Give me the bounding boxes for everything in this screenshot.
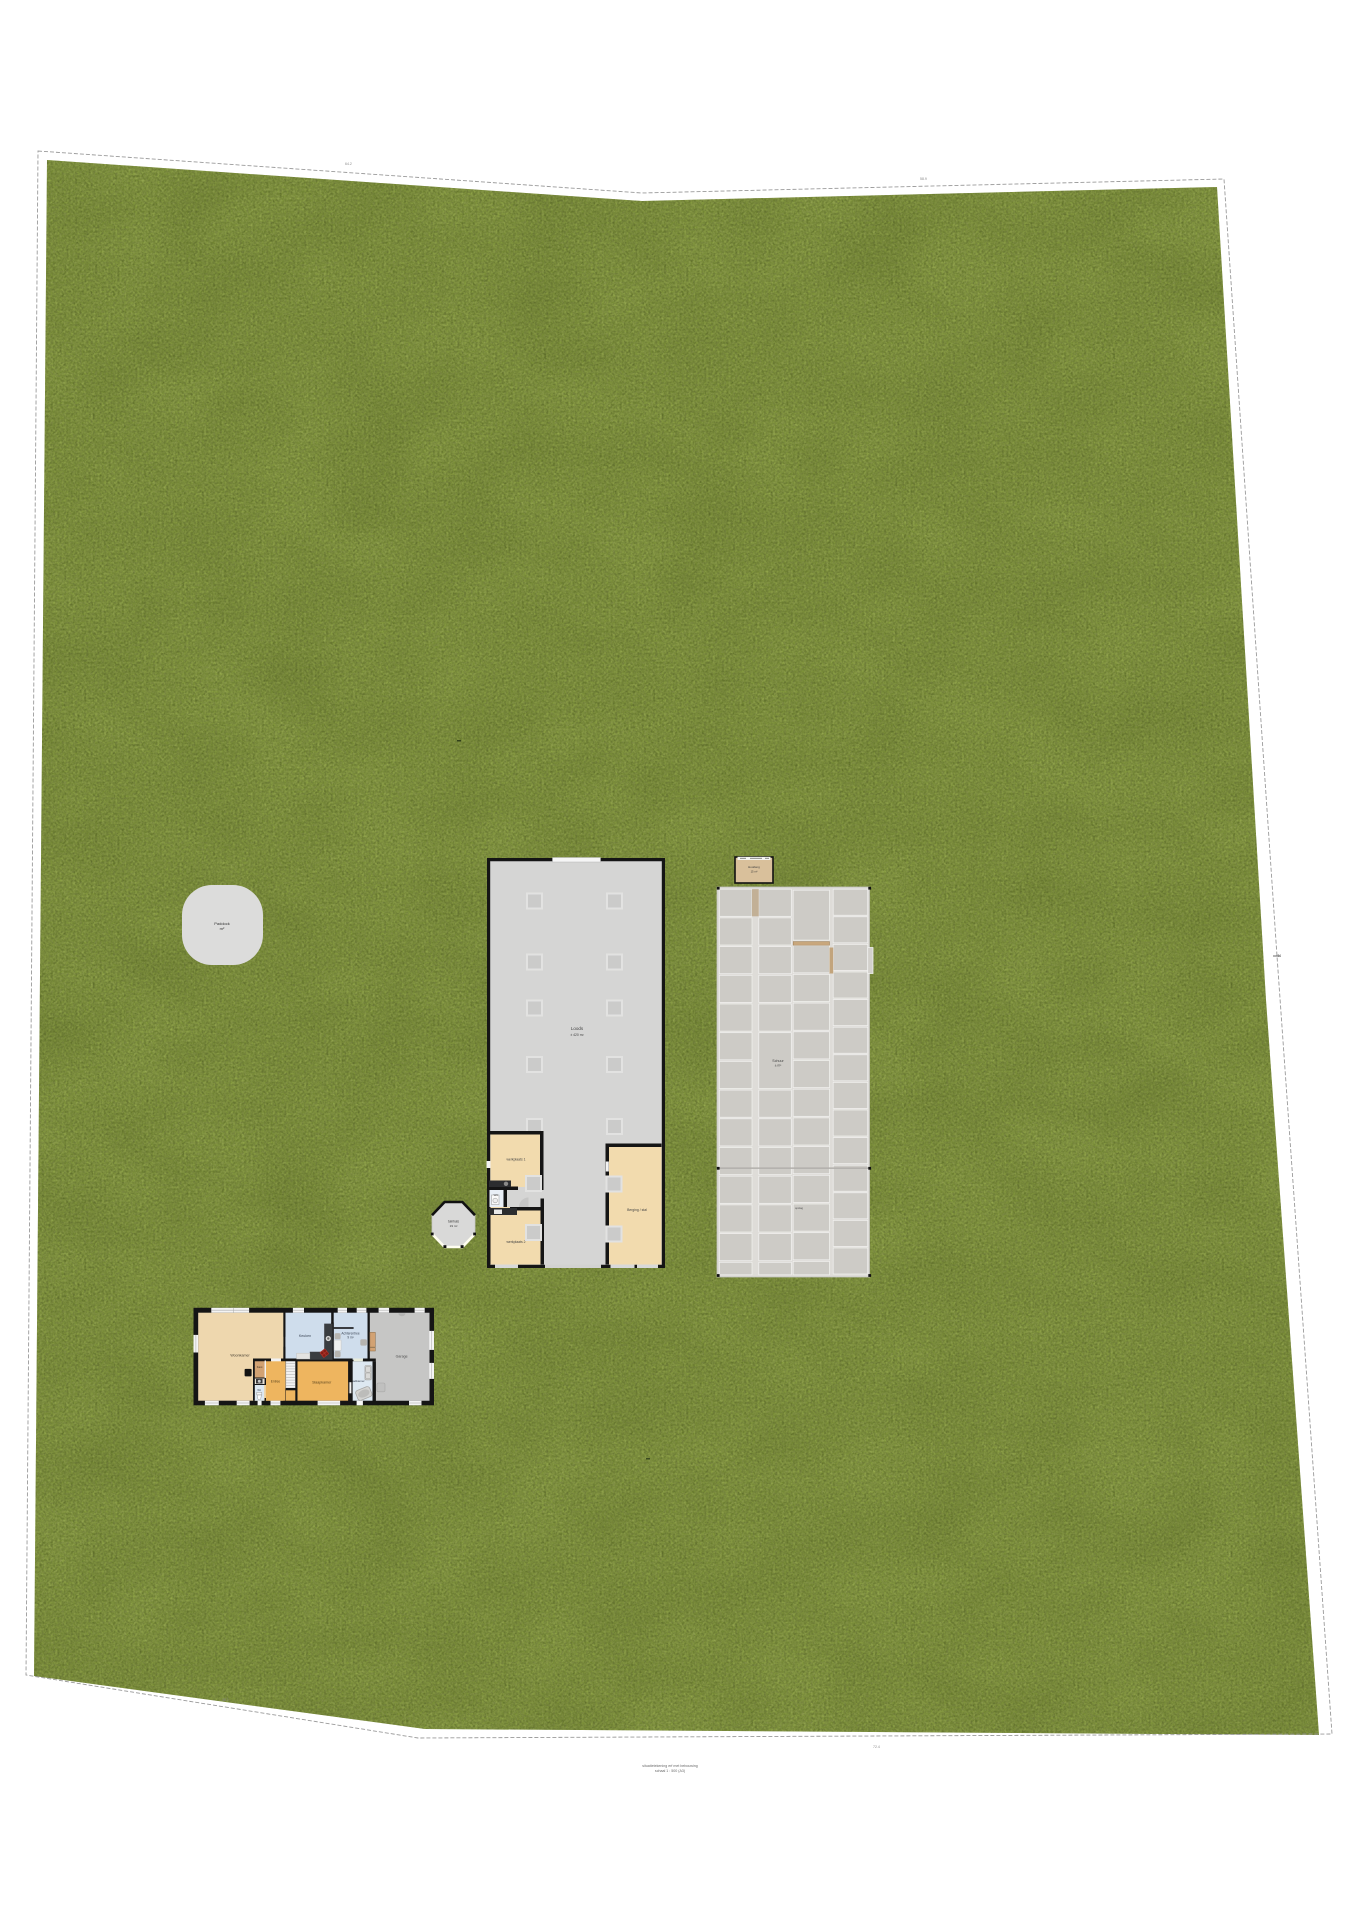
svg-text:Woonkamer: Woonkamer [230, 1354, 250, 1358]
svg-text:± m²: ± m² [775, 1064, 782, 1068]
svg-text:Hooiberg: Hooiberg [748, 865, 760, 869]
svg-text:15 m²: 15 m² [751, 869, 758, 873]
svg-text:74: 74 [1278, 954, 1282, 958]
svg-text:schaal 1 : 500 (A3): schaal 1 : 500 (A3) [655, 1769, 685, 1773]
svg-text:Schuur: Schuur [772, 1059, 784, 1063]
svg-text:Berging / stal: Berging / stal [627, 1208, 647, 1212]
svg-text:38.1: 38.1 [222, 1698, 229, 1702]
svg-text:Kast: Kast [257, 1365, 263, 1369]
svg-text:Garage: Garage [396, 1355, 408, 1359]
svg-text:± 420 m²: ± 420 m² [570, 1033, 584, 1037]
svg-text:Keuken: Keuken [299, 1334, 311, 1338]
svg-text:werkplaats 1: werkplaats 1 [506, 1158, 525, 1162]
svg-text:Entree: Entree [271, 1380, 281, 1384]
svg-text:58.9: 58.9 [920, 177, 927, 181]
svg-text:m²: m² [220, 926, 225, 931]
svg-text:64.2: 64.2 [345, 162, 352, 166]
svg-text:Badkamer: Badkamer [351, 1379, 365, 1383]
svg-text:WC: WC [494, 1193, 499, 1197]
svg-text:Slaapkamer: Slaapkamer [312, 1381, 332, 1385]
svg-text:situatietekening erf met bebou: situatietekening erf met bebouwing [642, 1764, 698, 1768]
svg-text:opslag: opslag [795, 1206, 804, 1210]
svg-text:werkplaats 2: werkplaats 2 [506, 1240, 525, 1244]
svg-text:9 m²: 9 m² [347, 1336, 353, 1340]
svg-text:tuinhuis: tuinhuis [448, 1220, 459, 1224]
svg-text:Loods: Loods [571, 1026, 584, 1031]
svg-text:19 m²: 19 m² [450, 1224, 458, 1228]
svg-text:72.4: 72.4 [873, 1745, 880, 1749]
